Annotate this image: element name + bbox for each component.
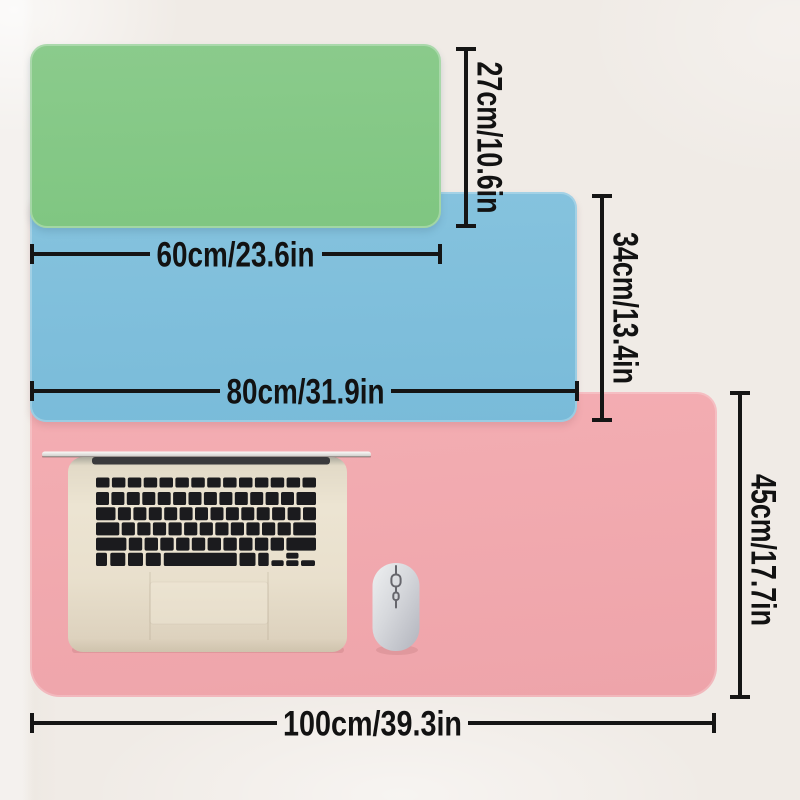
- svg-text:27cm/10.6in: 27cm/10.6in: [470, 62, 509, 214]
- svg-text:45cm/17.7in: 45cm/17.7in: [744, 474, 783, 626]
- svg-text:60cm/23.6in: 60cm/23.6in: [157, 236, 315, 275]
- svg-text:80cm/31.9in: 80cm/31.9in: [227, 373, 385, 412]
- svg-text:100cm/39.3in: 100cm/39.3in: [283, 705, 462, 744]
- svg-text:34cm/13.4in: 34cm/13.4in: [606, 232, 645, 384]
